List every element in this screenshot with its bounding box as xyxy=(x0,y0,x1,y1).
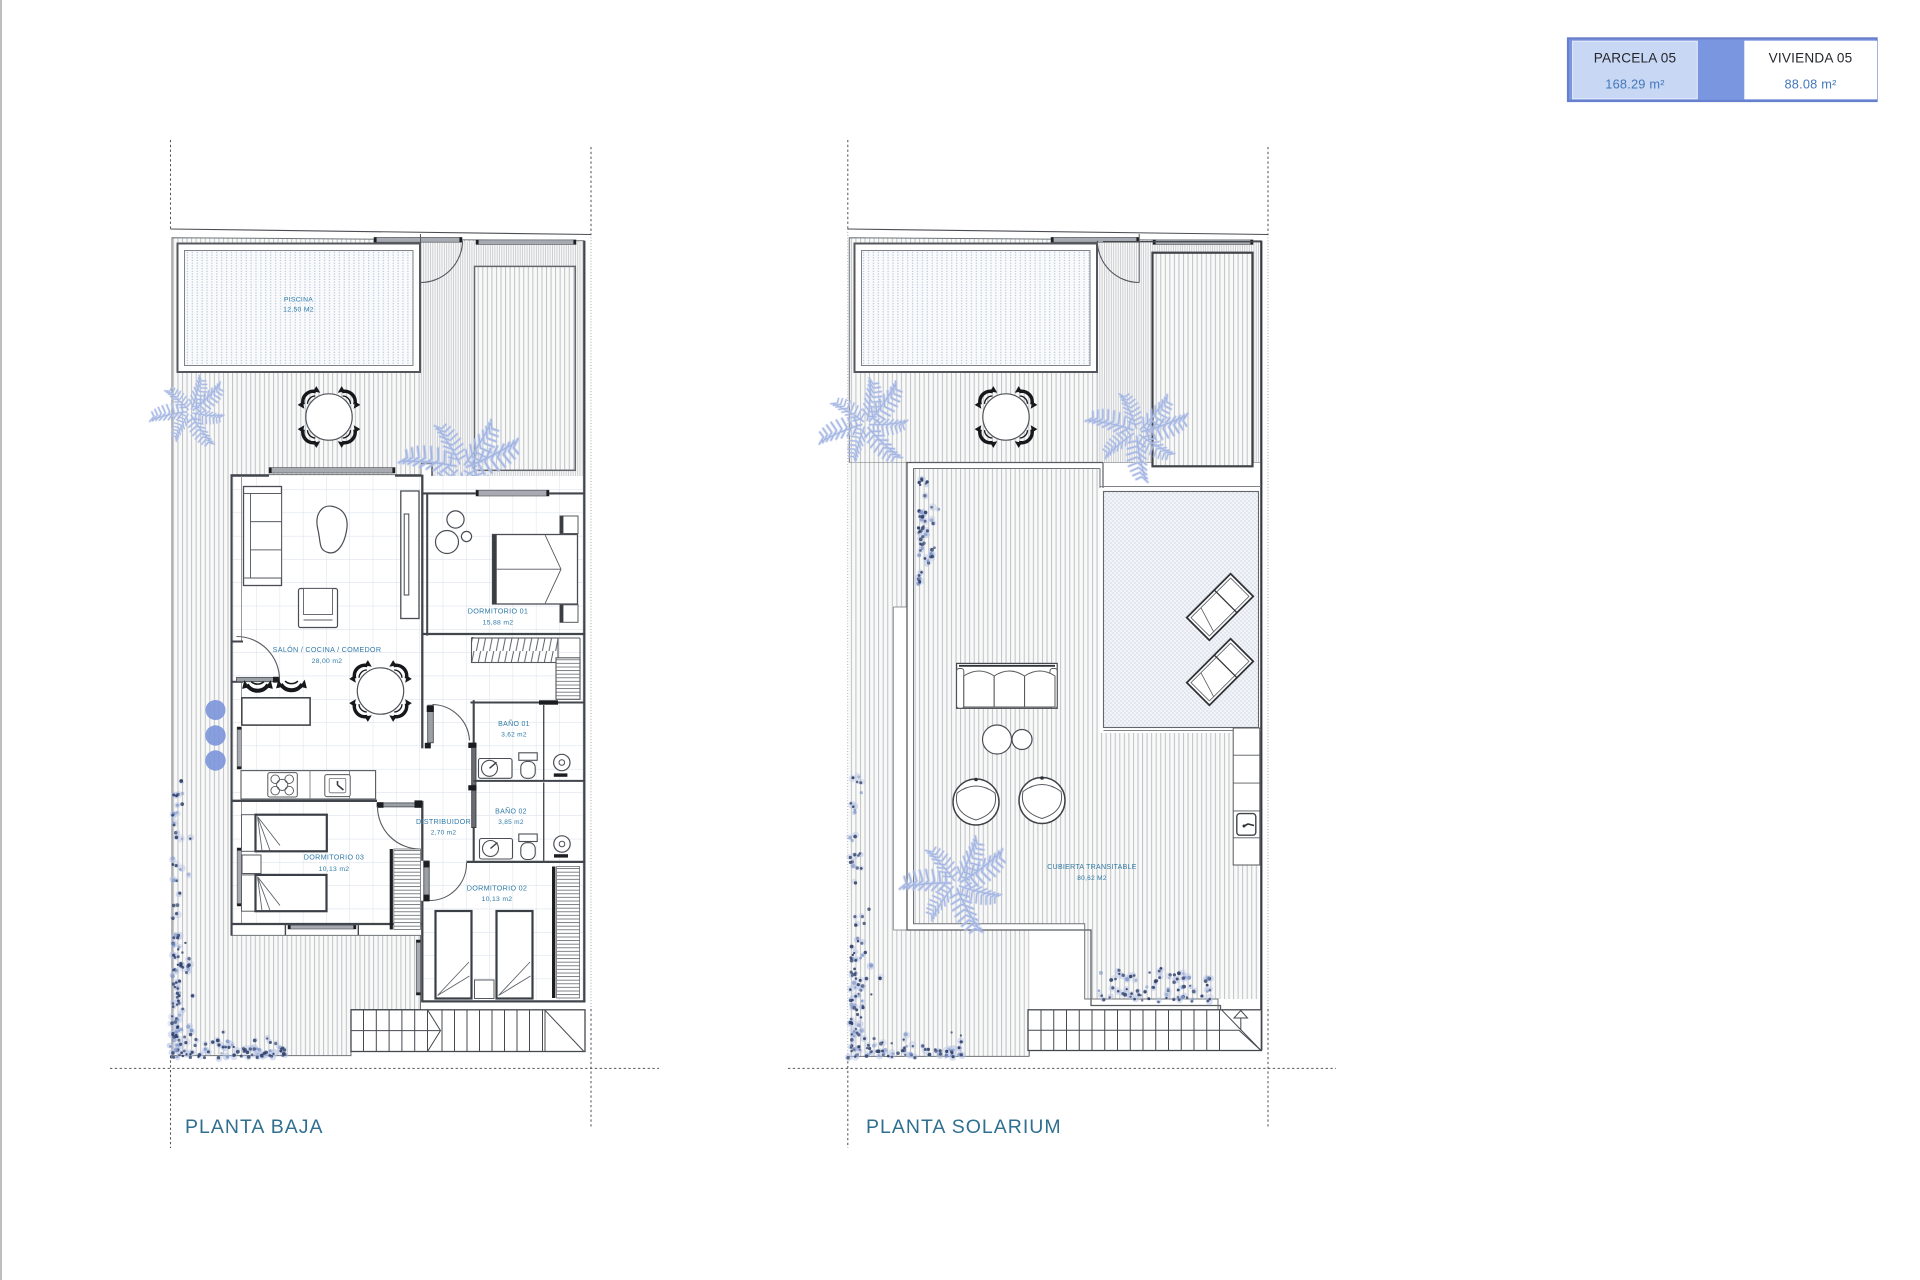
svg-text:BAÑO 01: BAÑO 01 xyxy=(498,719,530,728)
svg-text:DORMITORIO 03: DORMITORIO 03 xyxy=(304,853,364,862)
svg-text:3,85 m2: 3,85 m2 xyxy=(498,819,524,826)
svg-text:80,62 M2: 80,62 M2 xyxy=(1077,875,1107,882)
svg-text:12,50 M2: 12,50 M2 xyxy=(283,307,314,314)
svg-text:28,00 m2: 28,00 m2 xyxy=(312,658,343,665)
svg-text:BAÑO 02: BAÑO 02 xyxy=(495,807,527,816)
svg-text:88.08 m²: 88.08 m² xyxy=(1784,77,1837,92)
svg-text:SALÓN / COCINA / COMEDOR: SALÓN / COCINA / COMEDOR xyxy=(273,645,382,654)
svg-text:PISCINA: PISCINA xyxy=(284,297,313,304)
svg-text:10,13 m2: 10,13 m2 xyxy=(319,866,350,873)
svg-text:VIVIENDA 05: VIVIENDA 05 xyxy=(1769,51,1853,66)
svg-text:PLANTA BAJA: PLANTA BAJA xyxy=(185,1116,324,1138)
svg-text:PARCELA 05: PARCELA 05 xyxy=(1594,51,1677,66)
svg-text:DORMITORIO 01: DORMITORIO 01 xyxy=(468,607,528,616)
svg-text:DORMITORIO 02: DORMITORIO 02 xyxy=(467,884,527,893)
svg-text:168.29 m²: 168.29 m² xyxy=(1605,77,1665,92)
svg-text:PLANTA SOLARIUM: PLANTA SOLARIUM xyxy=(866,1116,1062,1138)
svg-text:3,62 m2: 3,62 m2 xyxy=(501,732,527,739)
svg-text:2,70 m2: 2,70 m2 xyxy=(431,830,457,837)
svg-text:10,13 m2: 10,13 m2 xyxy=(482,896,513,903)
svg-text:CUBIERTA TRANSITABLE: CUBIERTA TRANSITABLE xyxy=(1047,864,1137,871)
svg-text:DISTRIBUIDOR: DISTRIBUIDOR xyxy=(416,817,471,826)
svg-text:15,88 m2: 15,88 m2 xyxy=(483,620,514,627)
